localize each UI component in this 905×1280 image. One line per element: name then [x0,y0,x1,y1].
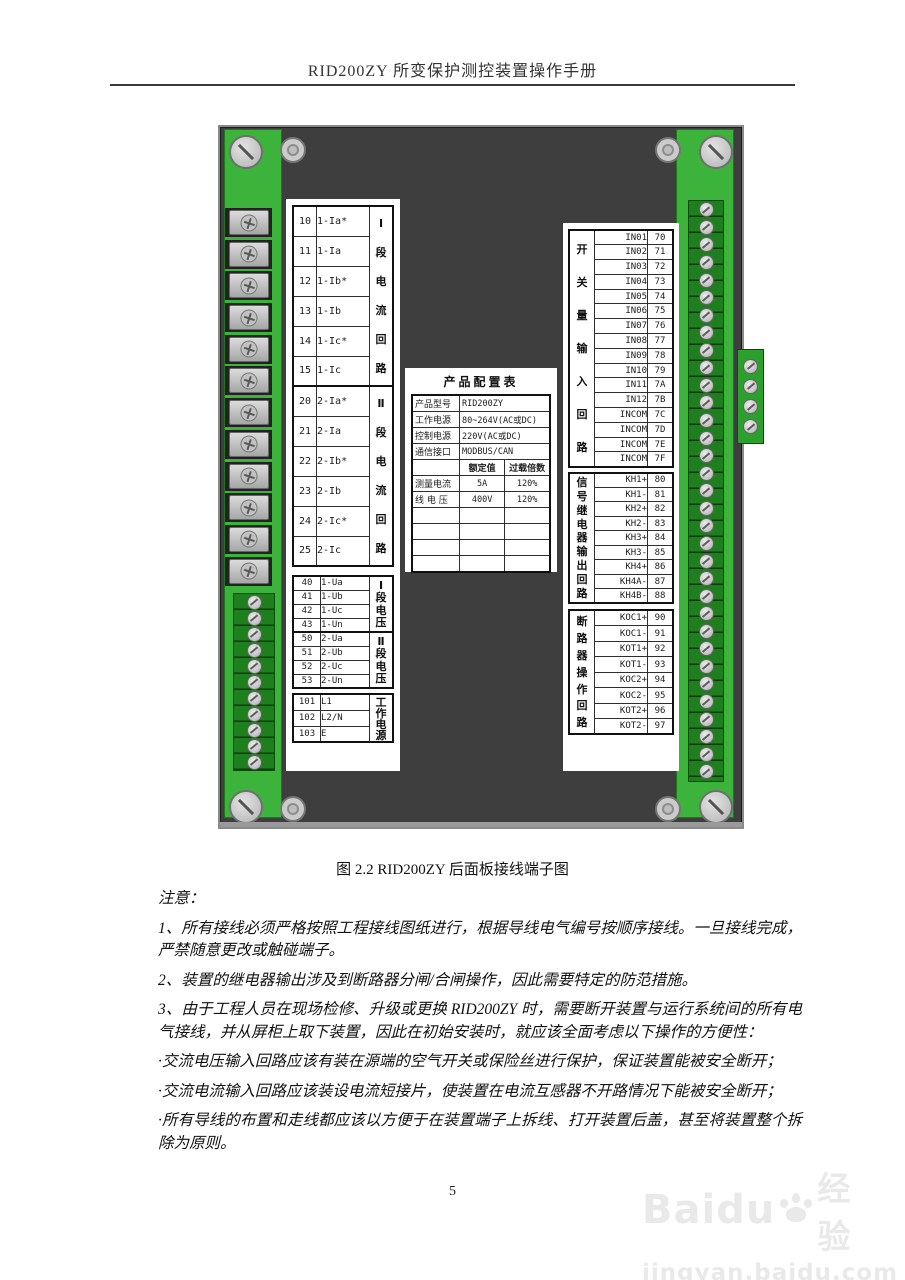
terminal-section-table: 断路器操作回路KOC1+90KOC1-91KOT1+92KOT1-93KOC2+… [568,609,674,735]
screw-plate [229,337,269,362]
side-connector-block [737,349,764,444]
terminal-screw-block [225,208,272,237]
voltage-terminal-table: 401-UaⅠ段电压411-Ub421-Uc431-Un502-UaⅡ段电压51… [292,575,394,689]
terminal-number: 42 [293,604,321,618]
terminal-number: 72 [648,260,674,275]
screw-plate [229,242,269,267]
terminal-screw-icon [247,707,262,722]
terminal-number: 91 [648,626,674,642]
terminal-screw-icon [699,483,714,498]
config-value: 220V(AC或DC) [460,428,551,444]
screw-plate [229,368,269,393]
phillips-screw-icon [238,307,259,328]
note-bullet: ·交流电压输入回路应该有装在源端的空气开关或保险丝进行保护，保证装置能被安全断开… [158,1051,802,1074]
screw-icon [229,135,263,169]
panel-bottom-edge [220,822,742,827]
terminal-number: 51 [293,646,321,660]
terminal-number: 95 [648,688,674,704]
config-empty-cell [412,524,460,540]
ring-screw-icon [280,796,306,822]
config-cell: 400V [460,492,505,508]
config-empty-row [412,524,550,540]
terminal-number: 7C [648,408,674,423]
config-empty-row [412,508,550,524]
terminal-screw-icon [699,501,714,516]
terminal-label: KH1- [595,487,648,502]
terminal-label: 1-Ua [321,576,370,590]
terminal-number: 86 [648,560,674,575]
terminal-row: 信号继电器输出回路KH1+80 [569,473,673,488]
terminal-label: IN06 [595,304,648,319]
terminal-label: KOC1- [595,626,648,642]
config-empty-cell [460,508,505,524]
terminal-label: 2-Ic* [317,506,370,536]
right-terminal-label-panel: 开关量输入回路IN0170IN0271IN0372IN0473IN0574IN0… [563,223,679,771]
terminal-number: 82 [648,502,674,517]
terminal-label: 2-Ic [317,536,370,566]
terminal-number: 24 [293,506,317,536]
terminal-number: 7A [648,378,674,393]
terminal-row: 502-UaⅡ段电压 [293,632,393,646]
terminal-section-table: 信号继电器输出回路KH1+80KH1-81KH2+82KH2-83KH3+84K… [568,472,674,605]
terminal-label: 2-Ia [317,416,370,446]
page-title: RID200ZY 所变保护测控装置操作手册 [0,57,905,81]
input-terminal-table: 开关量输入回路IN0170IN0271IN0372IN0473IN0574IN0… [568,229,674,468]
config-header-row: 额定值过载倍数 [412,460,550,476]
config-label: 控制电源 [412,428,460,444]
screw-plate [229,464,269,489]
terminal-screw-icon [699,325,714,340]
breaker-terminal-table: 断路器操作回路KOC1+90KOC1-91KOT1+92KOT1-93KOC2+… [568,609,674,735]
terminal-screw-icon [247,643,262,658]
watermark-brand: Baidu [642,1187,775,1233]
terminal-number: 40 [293,576,321,590]
rear-panel-diagram: 101-Ia*Ⅰ段电流回路111-Ia121-Ib*131-Ib141-Ic*1… [218,125,744,829]
terminal-label: IN09 [595,348,648,363]
terminal-screw-icon [247,659,262,674]
terminal-number: 92 [648,641,674,657]
terminal-screw-icon [699,624,714,639]
terminal-label: KOT2- [595,719,648,735]
terminal-number: 50 [293,632,321,646]
terminal-number: 83 [648,516,674,531]
terminal-screw-icon [699,237,714,252]
figure-caption: 图 2.2 RID200ZY 后面板接线端子图 [0,858,905,879]
screw-plate [229,559,269,584]
phillips-screw-icon [238,465,259,486]
terminal-number: 52 [293,660,321,674]
terminal-label: KH4B- [595,589,648,604]
config-info-row: 产品型号RID200ZY [412,395,550,412]
product-config-table: 产品型号RID200ZY工作电源80~264V(AC或DC)控制电源220V(A… [411,394,551,573]
terminal-screw-icon [699,273,714,288]
terminal-screw-icon [743,379,758,394]
terminal-label: 2-Ib [317,476,370,506]
terminal-number: 75 [648,304,674,319]
terminal-label: IN05 [595,289,648,304]
ring-screw-icon [655,796,681,822]
config-data-row: 测量电流5A120% [412,476,550,492]
terminal-screw-icon [699,729,714,744]
phillips-screw-icon [238,370,259,391]
terminal-screw-icon [699,308,714,323]
terminal-screw-icon [699,571,714,586]
terminal-group-label: Ⅰ段电流回路 [370,206,394,386]
config-info-row: 工作电源80~264V(AC或DC) [412,412,550,428]
terminal-label: IN08 [595,334,648,349]
terminal-section-table: 202-Ia*Ⅱ段电流回路212-Ia222-Ib*232-Ib242-Ic*2… [292,385,394,567]
terminal-group-label: 信号继电器输出回路 [569,473,595,604]
screw-plate [229,400,269,425]
config-empty-cell [505,524,550,540]
terminal-number: 53 [293,674,321,688]
terminal-number: 23 [293,476,317,506]
config-empty-cell [505,508,550,524]
terminal-row: 断路器操作回路KOC1+90 [569,610,673,626]
terminal-number: 13 [293,296,317,326]
terminal-label: 1-Uc [321,604,370,618]
phillips-screw-icon [238,243,259,264]
terminal-group-label: 开关量输入回路 [569,230,595,467]
phillips-screw-icon [238,529,259,550]
terminal-number: 21 [293,416,317,446]
terminal-number: 43 [293,618,321,632]
terminal-number: 81 [648,487,674,502]
terminal-label: INCOM [595,422,648,437]
config-value: 80~264V(AC或DC) [460,412,551,428]
terminal-number: 77 [648,334,674,349]
terminal-label: IN07 [595,319,648,334]
terminal-number: 7F [648,452,674,467]
terminal-label: KH4+ [595,560,648,575]
terminal-screw-icon [743,359,758,374]
terminal-label: 1-Ub [321,590,370,604]
config-empty-cell [460,524,505,540]
terminal-screw-block [225,240,272,269]
phillips-screw-icon [238,560,259,581]
terminal-screw-icon [247,627,262,642]
config-header-cell [412,460,460,476]
terminal-number: 7B [648,393,674,408]
terminal-label: 1-Ic [317,356,370,386]
terminal-number: 85 [648,545,674,560]
terminal-label: KOT1+ [595,641,648,657]
terminal-number: 88 [648,589,674,604]
terminal-screw-icon [699,395,714,410]
terminal-label: 1-Ia [317,236,370,266]
config-label: 产品型号 [412,395,460,412]
terminal-label: 2-Ua [321,632,370,646]
terminal-number: 7D [648,422,674,437]
config-empty-cell [460,540,505,556]
terminal-number: 20 [293,386,317,416]
terminal-label: L2/N [321,710,370,726]
terminal-group-label: 断路器操作回路 [569,610,595,734]
terminal-screw-icon [699,378,714,393]
terminal-screw-block [225,557,272,586]
left-terminal-strip [224,129,282,818]
terminal-screw-block [225,366,272,395]
terminal-label: 2-Ia* [317,386,370,416]
config-info-row: 通信接口MODBUS/CAN [412,444,550,460]
terminal-screw-icon [699,589,714,604]
terminal-row: 开关量输入回路IN0170 [569,230,673,245]
terminal-screw-icon [699,220,714,235]
terminal-label: IN03 [595,260,648,275]
terminal-screw-icon [699,659,714,674]
terminal-label: KH4A- [595,574,648,589]
config-data-row: 线 电 压400V120% [412,492,550,508]
screw-plate [229,305,269,330]
terminal-screw-icon [743,399,758,414]
terminal-number: 97 [648,719,674,735]
config-header-cell: 额定值 [460,460,505,476]
terminal-row: 202-Ia*Ⅱ段电流回路 [293,386,393,416]
terminal-screw-icon [247,739,262,754]
right-terminal-strip [676,129,734,818]
config-empty-cell [412,508,460,524]
terminal-number: 73 [648,274,674,289]
terminal-screw-block [225,398,272,427]
terminal-screw-block [225,462,272,491]
notes-section: 注意： 1、所有接线必须严格按照工程接线图纸进行，根据导线电气编号按顺序接线。一… [158,888,802,1162]
screw-icon [699,790,733,824]
config-table-title: 产品配置表 [411,373,551,390]
screw-plate [229,210,269,235]
terminal-row: 401-UaⅠ段电压 [293,576,393,590]
terminal-label: 1-Ic* [317,326,370,356]
left-terminal-label-panel: 101-Ia*Ⅰ段电流回路111-Ia121-Ib*131-Ib141-Ic*1… [286,199,400,771]
relay-terminal-table: 信号继电器输出回路KH1+80KH1-81KH2+82KH2-83KH3+84K… [568,472,674,605]
phillips-screw-icon [238,434,259,455]
terminal-label: 1-Ia* [317,206,370,236]
terminal-label: L1 [321,694,370,710]
config-empty-cell [412,556,460,573]
terminal-screw-icon [247,675,262,690]
terminal-label: IN02 [595,245,648,260]
terminal-number: 103 [293,726,321,742]
config-label: 通信接口 [412,444,460,460]
terminal-screw-icon [247,595,262,610]
note-item: 1、所有接线必须严格按照工程接线图纸进行，根据导线电气编号按顺序接线。一旦接线完… [158,918,802,963]
current-terminal-table: 101-Ia*Ⅰ段电流回路111-Ia121-Ib*131-Ib141-Ic*1… [292,205,394,567]
terminal-label: KOT1- [595,657,648,673]
io-terminal-block [688,200,724,782]
terminal-label: KOT2+ [595,703,648,719]
terminal-number: 94 [648,672,674,688]
terminal-label: INCOM [595,452,648,467]
note-bullet: ·交流电流输入回路应该装设电流短接片，使装置在电流互感器不开路情况下能被安全断开… [158,1081,802,1104]
terminal-screw-block [225,335,272,364]
screw-plate [229,432,269,457]
terminal-number: 7E [648,437,674,452]
terminal-number: 25 [293,536,317,566]
terminal-number: 11 [293,236,317,266]
terminal-number: 12 [293,266,317,296]
terminal-screw-icon [699,343,714,358]
terminal-screw-icon [699,431,714,446]
terminal-label: 1-Ib [317,296,370,326]
terminal-group-label: Ⅱ段电压 [370,632,394,688]
terminal-screw-icon [699,764,714,779]
terminal-number: 74 [648,289,674,304]
terminal-screw-icon [699,360,714,375]
config-label: 工作电源 [412,412,460,428]
watermark-url: jingyan.baidu.com [642,1260,882,1280]
terminal-row: 101L1工作电源 [293,694,393,710]
terminal-screw-icon [247,691,262,706]
config-empty-cell [505,540,550,556]
config-info-row: 控制电源220V(AC或DC) [412,428,550,444]
screw-icon [229,790,263,824]
terminal-screw-block [225,303,272,332]
terminal-label: IN10 [595,363,648,378]
config-value: MODBUS/CAN [460,444,551,460]
terminal-number: 10 [293,206,317,236]
terminal-label: KH2+ [595,502,648,517]
note-bullet: ·所有导线的布置和走线都应该以方便于在装置端子上拆线、打开装置后盖，甚至将装置整… [158,1110,802,1155]
screw-icon [699,135,733,169]
terminal-group-label: 工作电源 [370,694,394,742]
terminal-screw-icon [699,694,714,709]
terminal-number: 71 [648,245,674,260]
config-value: RID200ZY [460,395,551,412]
terminal-number: 76 [648,319,674,334]
terminal-number: 41 [293,590,321,604]
watermark: Baidu 经验 jingyan.baidu.com [642,1162,882,1280]
config-empty-cell [505,556,550,573]
terminal-label: INCOM [595,408,648,423]
terminal-label: 2-Un [321,674,370,688]
terminal-number: 15 [293,356,317,386]
terminal-screw-icon [699,413,714,428]
terminal-screw-icon [699,676,714,691]
phillips-screw-icon [238,497,259,518]
config-cell: 线 电 压 [412,492,460,508]
terminal-group-label: Ⅰ段电压 [370,576,394,632]
terminal-label: KH1+ [595,473,648,488]
power-terminal-table: 101L1工作电源102L2/N103E [292,693,394,743]
terminal-section-table: 401-UaⅠ段电压411-Ub421-Uc431-Un [292,575,394,633]
terminal-number: 70 [648,230,674,245]
terminal-number: 90 [648,610,674,626]
voltage-terminal-block [233,593,275,771]
note-item: 2、装置的继电器输出涉及到断路器分闸/合闸操作，因此需要特定的防范措施。 [158,970,802,993]
terminal-label: KOC2- [595,688,648,704]
terminal-screw-icon [247,611,262,626]
terminal-section-table: 101-Ia*Ⅰ段电流回路111-Ia121-Ib*131-Ib141-Ic*1… [292,205,394,387]
config-empty-cell [460,556,505,573]
terminal-screw-block [225,493,272,522]
terminal-screw-icon [247,723,262,738]
terminal-section-table: 101L1工作电源102L2/N103E [292,693,394,743]
terminal-label: KH3- [595,545,648,560]
note-item: 3、由于工程人员在现场检修、升级或更换 RID200ZY 时，需要断开装置与运行… [158,999,802,1044]
config-empty-row [412,540,550,556]
terminal-label: INCOM [595,437,648,452]
watermark-suffix: 经验 [817,1162,882,1258]
phillips-screw-icon [238,339,259,360]
terminal-screw-icon [699,536,714,551]
terminal-label: 2-Uc [321,660,370,674]
paw-icon [779,1193,813,1227]
config-cell: 测量电流 [412,476,460,492]
terminal-number: 101 [293,694,321,710]
terminal-label: IN12 [595,393,648,408]
terminal-screw-block [225,430,272,459]
ring-screw-icon [655,137,681,163]
terminal-label: 2-Ub [321,646,370,660]
terminal-number: 79 [648,363,674,378]
config-empty-row [412,556,550,573]
terminal-screw-icon [699,290,714,305]
phillips-screw-icon [238,212,259,233]
terminal-number: 78 [648,348,674,363]
terminal-label: KOC1+ [595,610,648,626]
terminal-label: IN01 [595,230,648,245]
terminal-screw-icon [247,755,262,770]
terminal-screw-icon [699,747,714,762]
screw-plate [229,495,269,520]
terminal-label: IN04 [595,274,648,289]
terminal-label: 2-Ib* [317,446,370,476]
manual-page: RID200ZY 所变保护测控装置操作手册 101-Ia*Ⅰ段电流回路111-I… [0,0,905,1280]
terminal-screw-icon [699,712,714,727]
terminal-label: KH3+ [595,531,648,546]
terminal-screw-icon [699,606,714,621]
config-empty-cell [412,540,460,556]
screw-plate [229,527,269,552]
terminal-number: 102 [293,710,321,726]
terminal-label: 1-Ib* [317,266,370,296]
terminal-label: 1-Un [321,618,370,632]
phillips-screw-icon [238,275,259,296]
config-cell: 120% [505,492,550,508]
terminal-number: 87 [648,574,674,589]
terminal-screw-icon [699,202,714,217]
config-header-cell: 过载倍数 [505,460,550,476]
terminal-section-table: 开关量输入回路IN0170IN0271IN0372IN0473IN0574IN0… [568,229,674,468]
terminal-number: 22 [293,446,317,476]
terminal-screw-block [225,525,272,554]
terminal-label: KOC2+ [595,672,648,688]
config-cell: 120% [505,476,550,492]
terminal-screw-icon [743,419,758,434]
terminal-number: 80 [648,473,674,488]
phillips-screw-icon [238,402,259,423]
terminal-number: 14 [293,326,317,356]
terminal-screw-icon [699,641,714,656]
ring-screw-icon [280,137,306,163]
terminal-section-table: 502-UaⅡ段电压512-Ub522-Uc532-Un [292,631,394,689]
terminal-screw-icon [699,518,714,533]
terminal-label: E [321,726,370,742]
config-cell: 5A [460,476,505,492]
terminal-number: 93 [648,657,674,673]
current-terminal-blocks [225,208,272,588]
header-rule [110,84,795,86]
terminal-label: KH2- [595,516,648,531]
terminal-screw-icon [699,554,714,569]
terminal-label: IN11 [595,378,648,393]
terminal-screw-icon [699,466,714,481]
terminal-number: 96 [648,703,674,719]
terminal-screw-icon [699,255,714,270]
terminal-number: 84 [648,531,674,546]
screw-plate [229,273,269,298]
terminal-screw-icon [699,448,714,463]
terminal-screw-block [225,271,272,300]
